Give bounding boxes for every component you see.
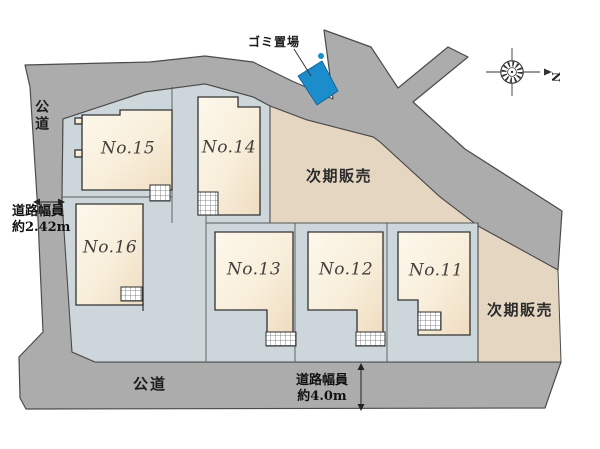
road-width-left-note: 道路幅員 約2.42m — [12, 204, 70, 236]
sale-area-upper-label: 次期販売 — [306, 167, 372, 185]
house-no15-label: No.15 — [101, 139, 155, 160]
house-no11-label: No.11 — [409, 261, 463, 282]
site-plan: N ゴミ置場 公道 道路幅員 約2.42m 次期販売 次期販売 公道 道路幅員 … — [0, 0, 600, 449]
parking-no14 — [198, 192, 218, 215]
public-road-left-label: 公道 — [32, 99, 49, 133]
parking-no13 — [266, 332, 296, 346]
garbage-station-label: ゴミ置場 — [248, 35, 300, 50]
parking-no12 — [356, 332, 385, 346]
garbage-leader-line — [294, 49, 311, 76]
house-no12-label: No.12 — [319, 260, 373, 281]
parking-no16 — [121, 287, 142, 301]
house-no14-label: No.14 — [202, 138, 256, 159]
compass-icon: N — [486, 48, 562, 96]
house-no16-label: No.16 — [83, 238, 137, 259]
compass-north-label: N — [549, 72, 562, 82]
road-width-bottom-note: 道路幅員 約4.0m — [296, 373, 348, 405]
house-no13-label: No.13 — [227, 260, 281, 281]
parking-no15 — [150, 185, 170, 201]
house-no15-tab-b — [75, 150, 82, 157]
house-no15-tab-a — [75, 118, 82, 124]
parking-no11 — [418, 312, 441, 330]
garbage-station-dot — [318, 53, 324, 59]
public-road-bottom-label: 公道 — [133, 375, 167, 393]
sale-area-right-label: 次期販売 — [487, 301, 553, 319]
